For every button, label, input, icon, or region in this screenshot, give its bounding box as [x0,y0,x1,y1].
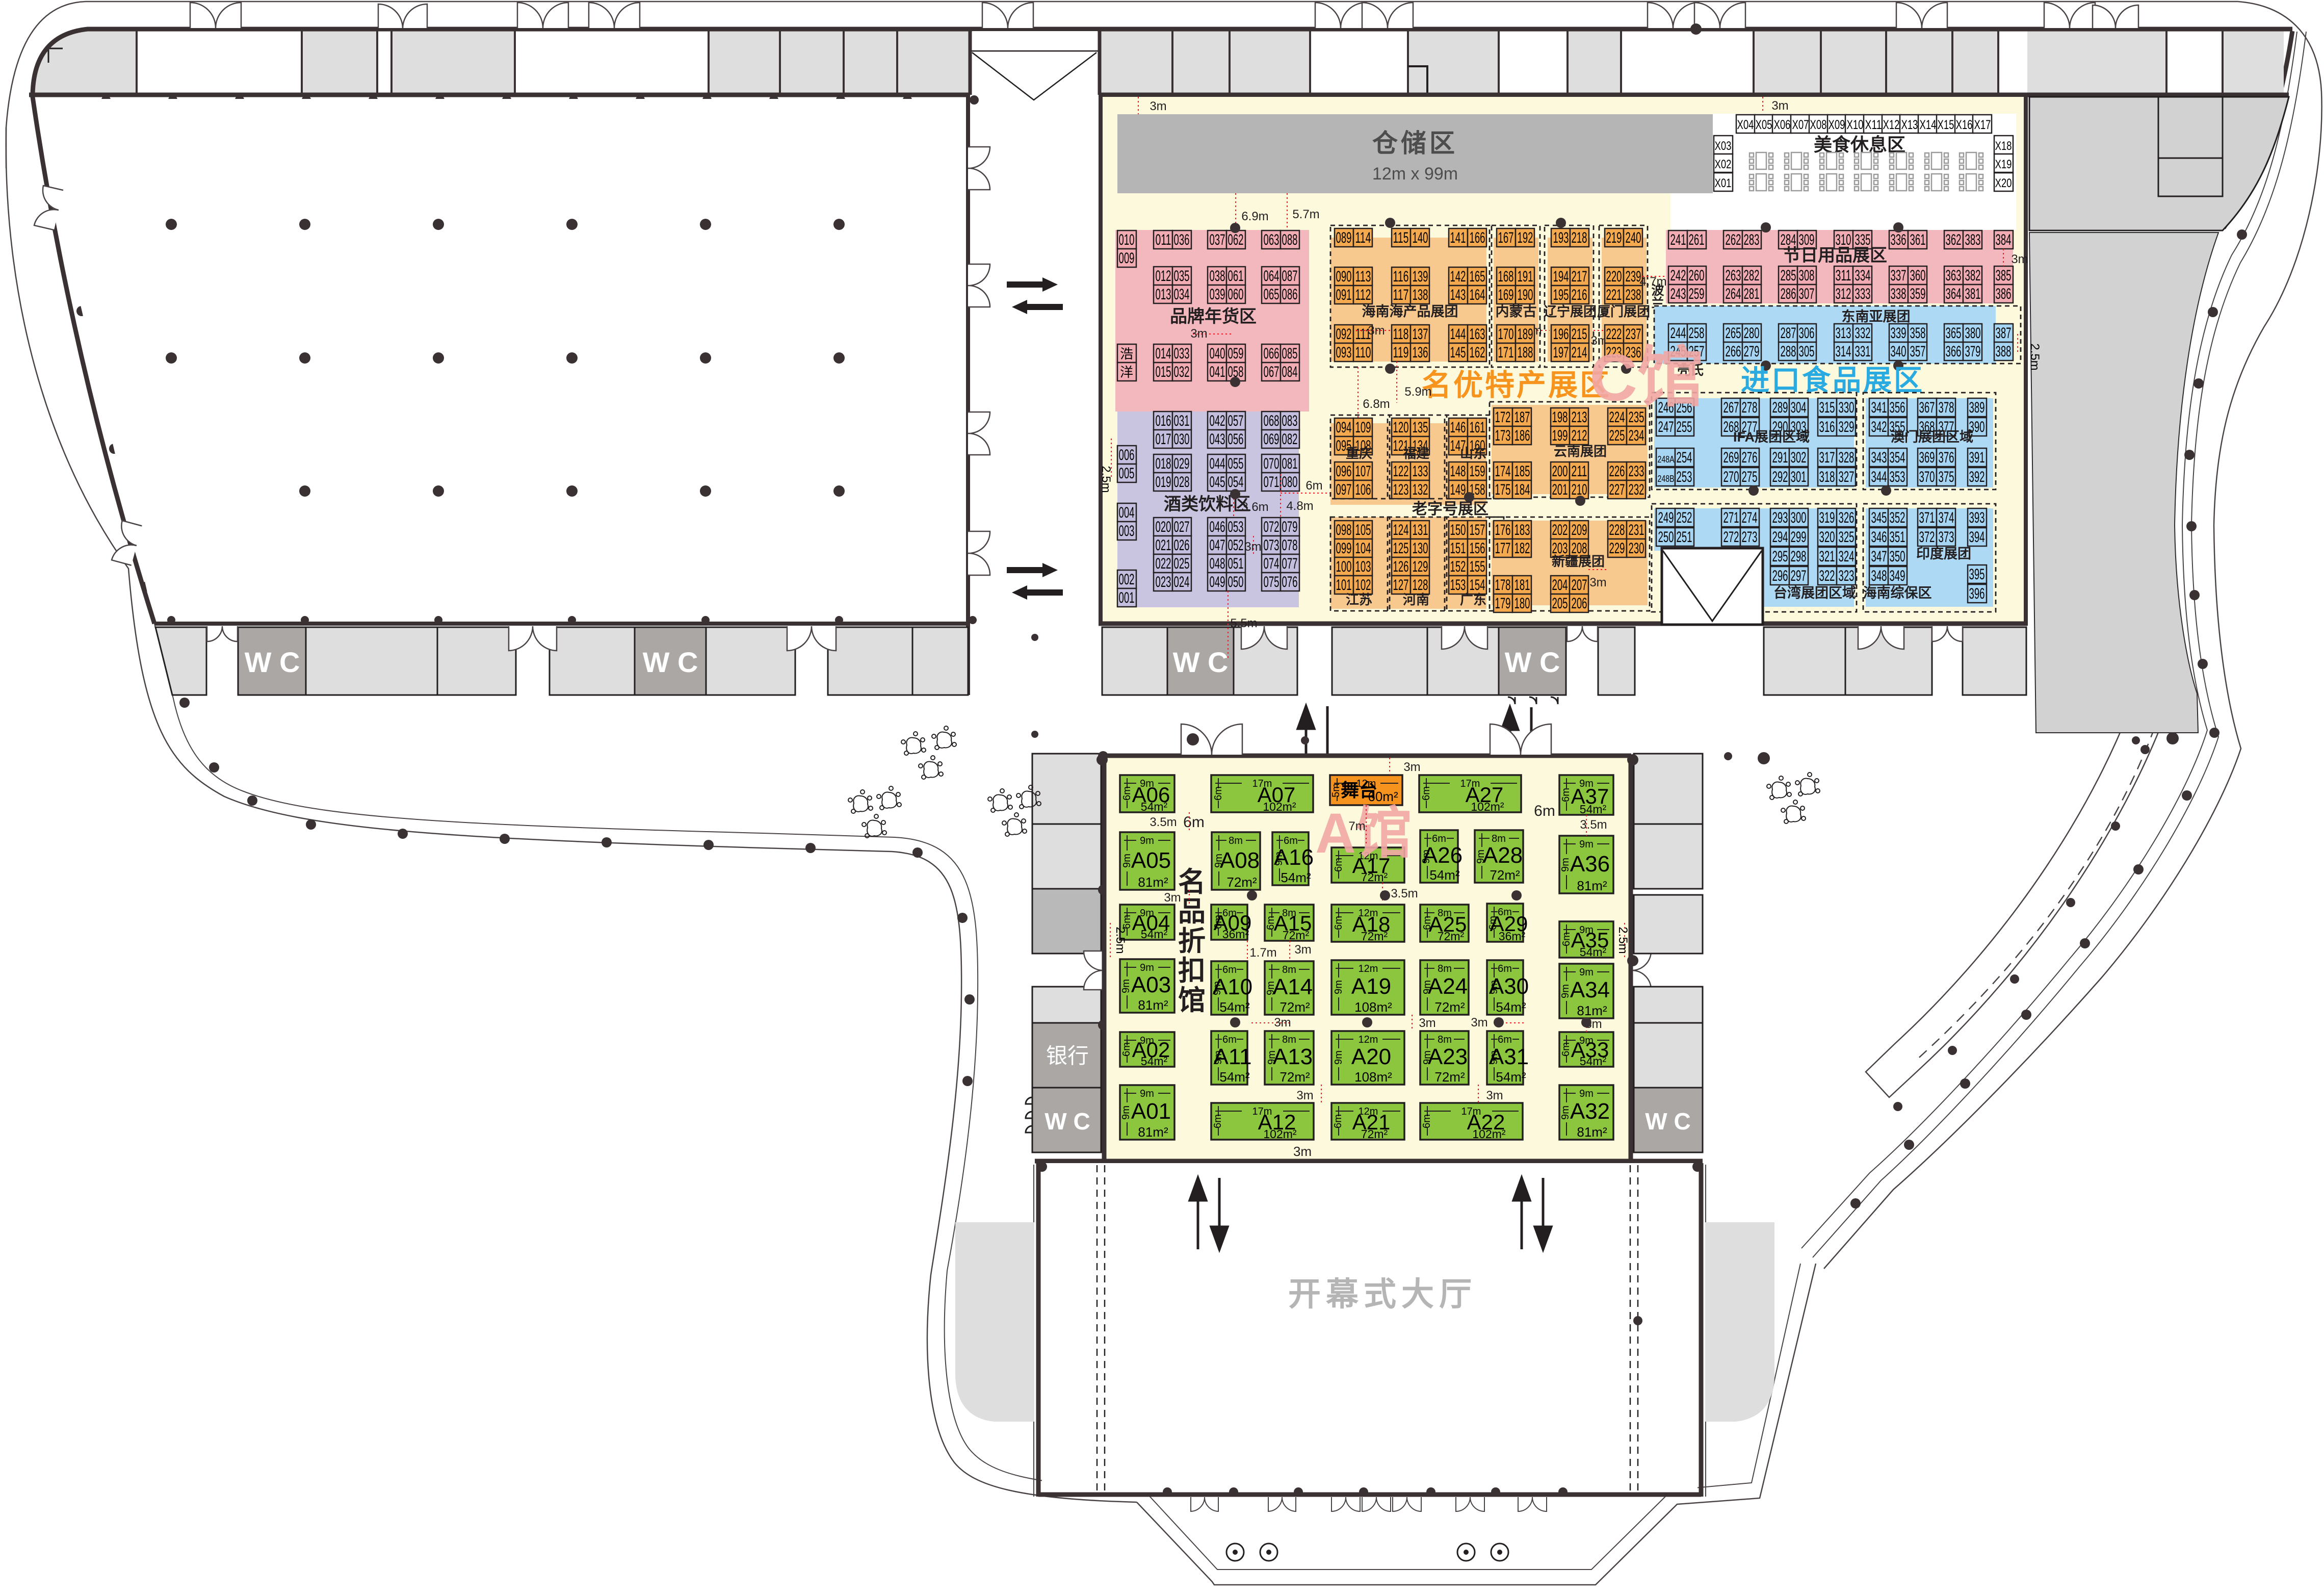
svg-text:388: 388 [1996,343,2012,360]
svg-text:123: 123 [1393,481,1409,498]
svg-text:026: 026 [1174,537,1190,554]
svg-text:166: 166 [1470,229,1485,246]
svg-text:81m²: 81m² [1577,1124,1607,1140]
svg-text:W C: W C [1505,646,1560,678]
svg-text:A23: A23 [1428,1044,1468,1069]
svg-text:131: 131 [1413,522,1428,538]
svg-text:X06: X06 [1774,118,1791,132]
svg-text:346: 346 [1871,529,1887,546]
svg-text:243: 243 [1670,286,1686,302]
svg-text:3m: 3m [1274,1016,1291,1030]
svg-text:8m: 8m [1282,1034,1296,1045]
svg-text:387: 387 [1996,325,2012,342]
svg-text:A馆: A馆 [1315,802,1412,865]
svg-text:54m²: 54m² [1141,800,1168,813]
svg-text:044: 044 [1210,455,1225,472]
svg-text:241: 241 [1670,231,1686,248]
svg-text:A13: A13 [1273,1044,1313,1069]
svg-text:54m²: 54m² [1281,870,1311,885]
svg-text:102m²: 102m² [1471,800,1504,813]
svg-text:013: 013 [1156,286,1171,303]
svg-text:6m: 6m [1333,1114,1344,1128]
svg-text:039: 039 [1210,286,1225,303]
svg-text:021: 021 [1156,537,1171,554]
svg-text:212: 212 [1572,427,1587,444]
svg-text:186: 186 [1514,427,1530,444]
svg-text:9m: 9m [1333,1050,1344,1065]
svg-text:新疆展团: 新疆展团 [1552,554,1605,569]
svg-text:6m: 6m [1121,1042,1132,1057]
svg-text:086: 086 [1282,286,1298,303]
svg-text:102: 102 [1355,577,1371,594]
svg-text:149: 149 [1450,481,1466,498]
svg-text:274: 274 [1742,509,1758,526]
svg-text:380: 380 [1965,325,1981,342]
svg-text:72m²: 72m² [1226,874,1257,890]
svg-text:114: 114 [1355,229,1371,246]
svg-text:293: 293 [1772,509,1788,526]
svg-text:386: 386 [1996,286,2012,302]
svg-text:006: 006 [1119,447,1135,464]
svg-text:207: 207 [1572,577,1587,594]
svg-text:9m: 9m [1120,1105,1132,1120]
svg-text:211: 211 [1572,463,1587,480]
svg-text:343: 343 [1871,449,1887,466]
svg-text:270: 270 [1724,469,1739,485]
svg-text:5m: 5m [1330,783,1342,797]
svg-text:075: 075 [1264,574,1279,590]
svg-text:澳门展团区域: 澳门展团区域 [1891,429,1973,445]
svg-text:258: 258 [1689,325,1705,342]
svg-text:298: 298 [1791,548,1807,565]
svg-text:内蒙古: 内蒙古 [1496,304,1537,319]
svg-text:150: 150 [1450,522,1466,538]
svg-text:104: 104 [1355,540,1371,557]
svg-text:305: 305 [1799,343,1815,360]
svg-text:093: 093 [1336,344,1352,361]
svg-text:367: 367 [1919,399,1935,416]
svg-text:A16: A16 [1274,845,1314,870]
svg-text:141: 141 [1450,229,1466,246]
svg-text:252: 252 [1677,509,1692,526]
svg-text:东南亚展团: 东南亚展团 [1842,308,1911,324]
svg-text:2.5m: 2.5m [1113,927,1127,954]
svg-text:240: 240 [1626,229,1641,246]
svg-text:216: 216 [1572,287,1587,303]
svg-text:251: 251 [1677,529,1692,546]
svg-text:356: 356 [1890,399,1905,416]
svg-text:192: 192 [1518,229,1533,246]
svg-text:151: 151 [1450,540,1466,557]
svg-text:372: 372 [1919,529,1935,546]
svg-text:12m: 12m [1359,1034,1378,1045]
svg-text:印度展团: 印度展团 [1916,546,1971,561]
svg-text:140: 140 [1413,229,1428,246]
svg-text:379: 379 [1965,343,1981,360]
svg-text:185: 185 [1514,463,1530,480]
svg-text:076: 076 [1282,574,1298,590]
svg-text:306: 306 [1799,325,1815,342]
svg-text:198: 198 [1552,409,1568,426]
svg-text:72m²: 72m² [1279,999,1310,1015]
svg-text:276: 276 [1742,449,1758,466]
svg-text:024: 024 [1174,574,1190,590]
svg-text:074: 074 [1264,555,1279,572]
svg-text:101: 101 [1336,577,1352,594]
svg-text:133: 133 [1413,463,1428,480]
svg-text:开幕式大厅: 开幕式大厅 [1288,1276,1477,1313]
svg-text:7m: 7m [1348,819,1365,833]
svg-text:W C: W C [1645,1108,1690,1135]
svg-text:X12: X12 [1883,118,1900,132]
svg-text:099: 099 [1336,540,1352,557]
svg-text:9m: 9m [1140,1088,1154,1099]
svg-text:X08: X08 [1810,118,1827,132]
svg-text:064: 064 [1264,268,1279,285]
svg-text:283: 283 [1744,231,1760,248]
svg-text:299: 299 [1791,529,1807,546]
svg-text:135: 135 [1413,419,1428,436]
svg-text:167: 167 [1498,229,1514,246]
svg-text:083: 083 [1282,413,1298,429]
svg-text:X16: X16 [1956,118,1973,132]
svg-text:X01: X01 [1715,176,1732,190]
svg-text:3m: 3m [1244,540,1261,554]
svg-text:053: 053 [1228,519,1244,535]
svg-text:9m: 9m [1140,962,1154,973]
svg-text:028: 028 [1174,474,1190,491]
svg-text:329: 329 [1839,419,1855,435]
svg-text:浩: 浩 [1120,346,1133,362]
svg-text:206: 206 [1572,595,1587,612]
svg-text:063: 063 [1264,231,1279,248]
svg-text:393: 393 [1969,509,1985,526]
svg-text:100: 100 [1336,558,1352,575]
svg-text:288: 288 [1781,343,1796,360]
svg-text:5.7m: 5.7m [1292,208,1319,221]
svg-text:045: 045 [1210,474,1225,491]
svg-text:184: 184 [1514,481,1530,498]
svg-text:217: 217 [1572,268,1587,285]
svg-text:A14: A14 [1273,974,1313,999]
svg-text:X17: X17 [1974,118,1991,132]
svg-text:W C: W C [643,646,698,678]
svg-text:350: 350 [1890,548,1905,565]
svg-text:W C: W C [1045,1108,1090,1135]
svg-text:54m²: 54m² [1429,867,1460,883]
svg-text:129: 129 [1413,558,1428,575]
svg-text:6m: 6m [1213,786,1224,801]
svg-text:201: 201 [1552,481,1568,498]
svg-text:317: 317 [1819,449,1835,466]
svg-text:170: 170 [1498,326,1514,343]
svg-text:281: 281 [1744,286,1760,302]
svg-text:292: 292 [1772,469,1788,485]
svg-text:148: 148 [1450,463,1466,480]
svg-text:品: 品 [1178,896,1206,927]
svg-text:A03: A03 [1131,972,1171,997]
svg-text:A01: A01 [1131,1099,1171,1124]
svg-text:8m: 8m [1438,963,1452,974]
svg-text:144: 144 [1450,326,1466,343]
svg-text:A31: A31 [1489,1044,1529,1069]
svg-text:052: 052 [1228,537,1244,554]
svg-text:018: 018 [1156,455,1171,472]
svg-text:030: 030 [1174,431,1190,448]
svg-text:3m: 3m [1164,891,1181,905]
svg-text:126: 126 [1393,558,1409,575]
svg-text:285: 285 [1781,267,1796,284]
svg-text:139: 139 [1413,268,1428,285]
svg-text:295: 295 [1772,548,1788,565]
svg-text:X15: X15 [1938,118,1954,132]
svg-text:A30: A30 [1489,974,1529,999]
svg-text:W C: W C [1173,646,1229,678]
svg-text:3.5m: 3.5m [1391,887,1418,901]
svg-text:6m: 6m [1560,1042,1572,1057]
svg-text:005: 005 [1119,465,1135,482]
svg-text:194: 194 [1553,268,1569,285]
svg-text:353: 353 [1890,469,1905,485]
svg-text:031: 031 [1174,413,1190,429]
svg-text:051: 051 [1228,555,1244,572]
svg-text:263: 263 [1726,267,1741,284]
svg-text:017: 017 [1156,431,1171,448]
svg-text:218: 218 [1572,229,1587,246]
svg-text:115: 115 [1393,229,1409,246]
svg-text:196: 196 [1553,326,1569,343]
svg-text:331: 331 [1855,343,1871,360]
svg-text:X19: X19 [1995,158,2012,171]
svg-text:173: 173 [1495,427,1511,444]
svg-text:81m²: 81m² [1577,878,1607,893]
svg-text:168: 168 [1498,268,1514,285]
svg-text:名优特产展区: 名优特产展区 [1422,369,1611,402]
svg-text:5.5m: 5.5m [1230,616,1257,630]
svg-text:395: 395 [1969,566,1985,583]
svg-text:066: 066 [1264,345,1279,362]
svg-text:156: 156 [1470,540,1485,557]
svg-text:360: 360 [1910,267,1926,284]
svg-text:323: 323 [1839,568,1855,584]
svg-text:351: 351 [1890,529,1905,546]
svg-text:219: 219 [1606,229,1622,246]
svg-text:304: 304 [1791,399,1807,416]
svg-text:103: 103 [1355,558,1371,575]
svg-text:232: 232 [1629,481,1644,498]
svg-text:81m²: 81m² [1138,1124,1168,1140]
svg-text:199: 199 [1552,427,1568,444]
svg-text:146: 146 [1450,419,1466,436]
svg-text:54m²: 54m² [1580,1054,1607,1068]
svg-text:9m: 9m [1579,839,1594,850]
svg-text:057: 057 [1228,413,1244,429]
svg-text:8m: 8m [1282,964,1296,975]
svg-text:6.8m: 6.8m [1363,397,1390,411]
svg-text:120: 120 [1393,419,1409,436]
svg-text:3m: 3m [1589,576,1606,589]
svg-text:118: 118 [1393,326,1409,343]
svg-text:384: 384 [1996,231,2012,248]
svg-text:337: 337 [1891,267,1907,284]
svg-text:6m: 6m [1121,786,1133,801]
svg-text:247: 247 [1658,419,1674,435]
svg-text:A11: A11 [1213,1044,1251,1069]
svg-text:385: 385 [1996,267,2012,284]
svg-text:061: 061 [1228,268,1244,285]
svg-text:035: 035 [1174,268,1190,285]
svg-text:072: 072 [1264,519,1279,535]
svg-text:016: 016 [1156,413,1171,429]
svg-text:338: 338 [1891,286,1907,302]
svg-text:004: 004 [1119,504,1135,521]
svg-text:3m: 3m [1419,1016,1435,1030]
svg-text:020: 020 [1156,519,1171,535]
svg-text:72m²: 72m² [1361,870,1388,884]
svg-text:102m²: 102m² [1263,1127,1297,1141]
svg-text:300: 300 [1791,509,1807,526]
svg-text:227: 227 [1609,481,1625,498]
svg-text:A28: A28 [1483,843,1523,868]
svg-text:6m: 6m [1333,916,1344,930]
svg-text:153: 153 [1450,577,1466,594]
svg-text:6.9m: 6.9m [1241,210,1268,223]
svg-text:X13: X13 [1901,118,1918,132]
svg-text:X09: X09 [1829,118,1845,132]
svg-text:097: 097 [1336,481,1352,498]
svg-text:091: 091 [1336,287,1352,303]
svg-text:122: 122 [1393,463,1409,480]
svg-text:001: 001 [1119,589,1135,606]
svg-text:X03: X03 [1715,139,1732,153]
svg-text:187: 187 [1514,409,1530,426]
svg-text:389: 389 [1969,399,1985,416]
svg-text:023: 023 [1156,574,1171,590]
svg-text:369: 369 [1919,449,1935,466]
svg-text:W C: W C [245,646,300,678]
svg-text:090: 090 [1336,268,1352,285]
svg-text:4.8m: 4.8m [1286,499,1313,513]
svg-text:341: 341 [1871,399,1887,416]
svg-text:154: 154 [1470,577,1485,594]
svg-text:231: 231 [1629,522,1644,538]
svg-text:233: 233 [1629,463,1644,480]
svg-text:广东: 广东 [1460,592,1486,607]
svg-text:332: 332 [1855,325,1871,342]
svg-text:365: 365 [1946,325,1962,342]
svg-text:72m²: 72m² [1434,1069,1465,1085]
svg-text:IFA展团区域: IFA展团区域 [1733,429,1810,445]
svg-text:269: 269 [1724,449,1739,466]
svg-text:3m: 3m [1403,760,1420,774]
svg-text:068: 068 [1264,413,1279,429]
svg-text:3m: 3m [1293,1144,1312,1159]
svg-text:342: 342 [1871,419,1887,435]
svg-text:176: 176 [1495,522,1511,538]
svg-text:316: 316 [1819,419,1835,435]
svg-text:9m: 9m [1560,858,1571,872]
svg-text:8m: 8m [1229,835,1243,846]
svg-text:馆: 馆 [1178,985,1206,1016]
svg-text:X05: X05 [1756,118,1772,132]
svg-text:392: 392 [1969,469,1985,485]
svg-text:6m: 6m [1534,803,1555,819]
svg-text:A05: A05 [1131,848,1171,873]
svg-text:375: 375 [1939,469,1954,485]
svg-text:162: 162 [1470,344,1485,361]
svg-text:2.5m: 2.5m [1099,466,1113,493]
svg-text:036: 036 [1174,231,1190,248]
svg-text:327: 327 [1839,469,1855,485]
svg-text:084: 084 [1282,364,1298,380]
svg-text:089: 089 [1336,229,1352,246]
svg-text:161: 161 [1470,419,1485,436]
svg-text:279: 279 [1744,343,1760,360]
svg-text:扣: 扣 [1178,956,1206,986]
svg-text:354: 354 [1890,449,1905,466]
svg-text:055: 055 [1228,455,1244,472]
svg-text:081: 081 [1282,455,1298,472]
svg-text:1.7m: 1.7m [1249,946,1276,960]
svg-text:台湾展团区域: 台湾展团区域 [1773,585,1856,601]
svg-text:105: 105 [1355,522,1371,538]
svg-text:220: 220 [1606,268,1622,285]
svg-text:280: 280 [1744,325,1760,342]
svg-text:073: 073 [1264,537,1279,554]
svg-text:159: 159 [1470,463,1485,480]
svg-text:C馆: C馆 [1589,340,1704,415]
svg-text:225: 225 [1609,427,1625,444]
svg-text:188: 188 [1518,344,1533,361]
svg-text:289: 289 [1772,399,1788,416]
svg-text:205: 205 [1552,595,1568,612]
svg-text:234: 234 [1629,427,1644,444]
svg-text:363: 363 [1946,267,1962,284]
svg-text:265: 265 [1726,325,1741,342]
svg-text:244: 244 [1670,325,1686,342]
svg-text:259: 259 [1689,286,1705,302]
svg-text:009: 009 [1119,250,1135,267]
svg-text:010: 010 [1119,231,1135,248]
svg-text:359: 359 [1910,286,1926,302]
svg-text:银行: 银行 [1046,1044,1089,1068]
svg-text:9m: 9m [1560,984,1571,998]
svg-text:202: 202 [1552,522,1568,538]
svg-text:027: 027 [1174,519,1190,535]
svg-text:025: 025 [1174,555,1190,572]
svg-text:195: 195 [1553,287,1569,303]
svg-text:6m: 6m [1222,964,1237,975]
svg-text:136: 136 [1413,344,1428,361]
svg-text:098: 098 [1336,522,1352,538]
svg-text:172: 172 [1495,409,1511,426]
svg-text:349: 349 [1890,568,1905,584]
svg-text:品牌年货区: 品牌年货区 [1170,307,1257,326]
svg-text:267: 267 [1724,399,1739,416]
svg-text:014: 014 [1156,345,1171,362]
svg-text:A19: A19 [1351,974,1391,999]
svg-text:260: 260 [1689,267,1705,284]
svg-text:059: 059 [1228,345,1244,362]
svg-text:040: 040 [1210,345,1225,362]
svg-text:155: 155 [1470,558,1485,575]
svg-text:6m: 6m [1421,1114,1432,1128]
svg-text:197: 197 [1553,344,1569,361]
svg-text:117: 117 [1393,287,1409,303]
svg-text:波: 波 [1651,284,1664,298]
svg-text:254: 254 [1677,449,1692,466]
svg-text:364: 364 [1946,286,1962,302]
